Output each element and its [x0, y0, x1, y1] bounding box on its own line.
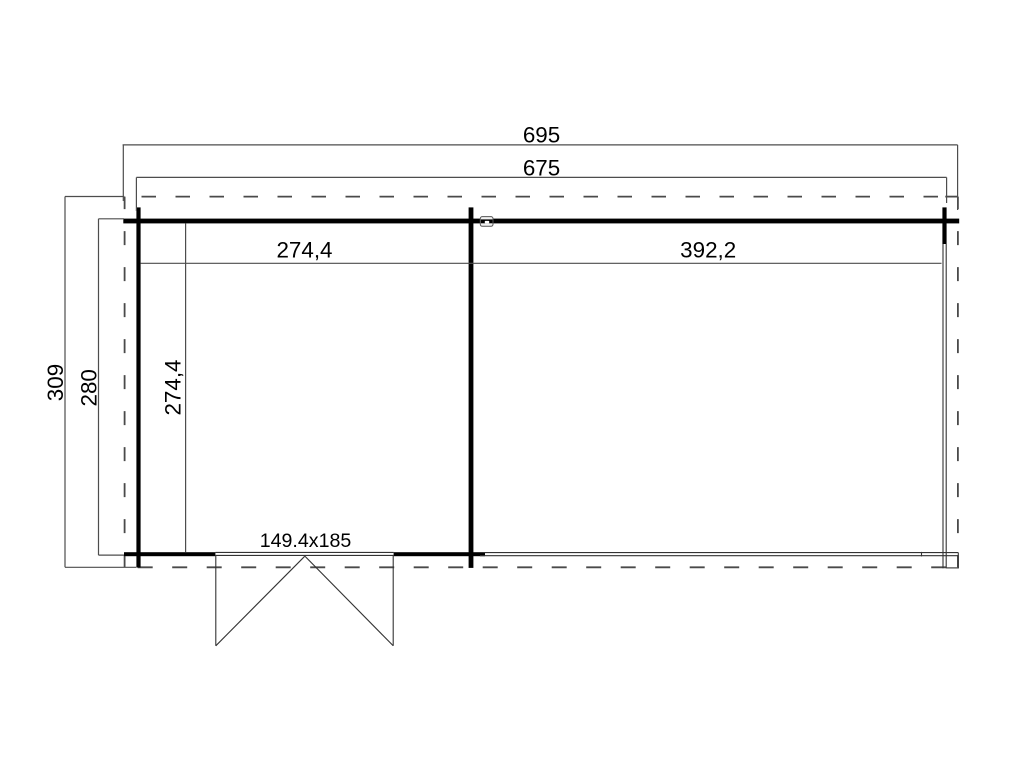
svg-text:280: 280	[77, 369, 102, 406]
svg-text:695: 695	[523, 122, 560, 147]
svg-text:149.4x185: 149.4x185	[260, 530, 352, 552]
svg-text:392,2: 392,2	[680, 237, 736, 262]
svg-text:274,4: 274,4	[276, 237, 332, 262]
svg-text:274,4: 274,4	[161, 359, 186, 415]
svg-text:309: 309	[43, 364, 68, 401]
svg-text:675: 675	[523, 156, 560, 181]
